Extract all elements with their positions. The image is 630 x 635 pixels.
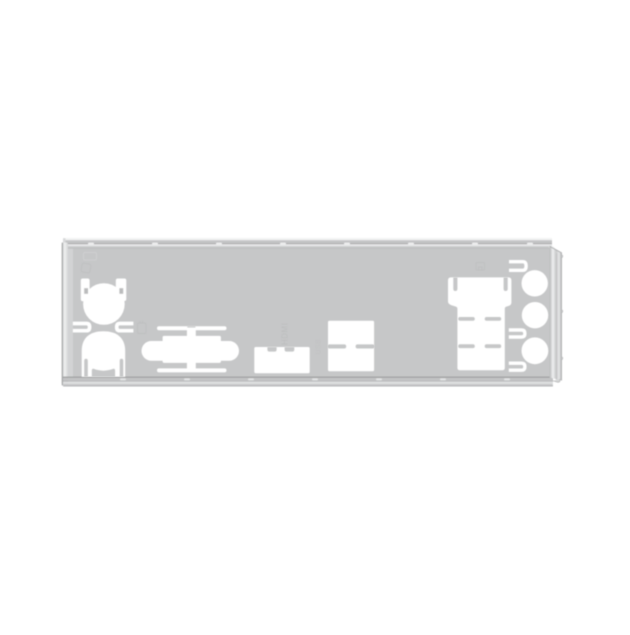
svg-text:HDMI: HDMI [281,323,290,345]
svg-text:USB: USB [316,339,323,355]
